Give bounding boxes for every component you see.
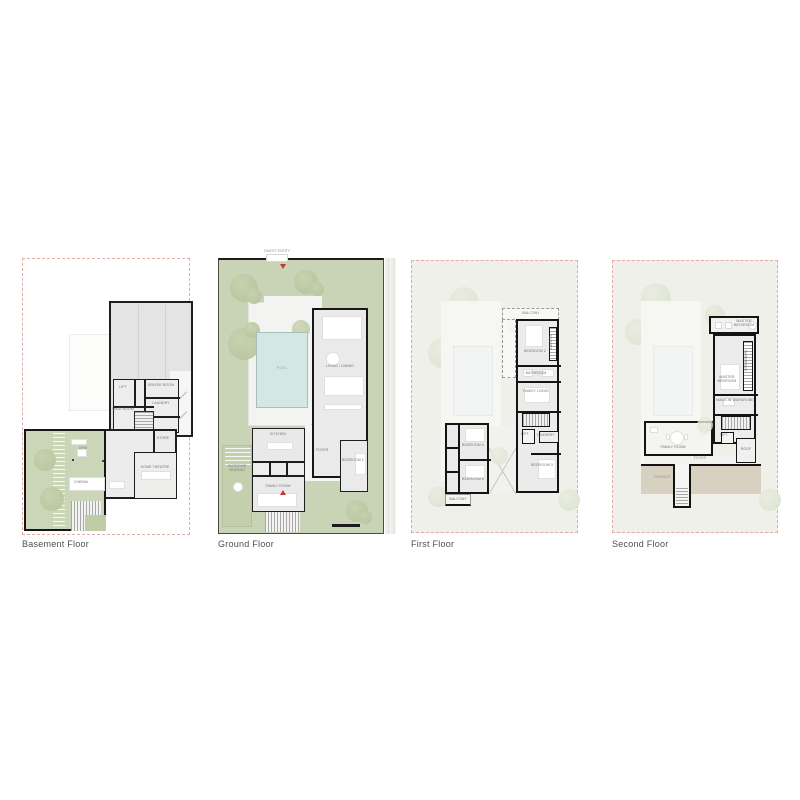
second-floor-panel: MASTER BATHROOM WARDROBE MASTER BEDROOM … — [612, 260, 778, 533]
ground-floor-panel: GUEST ENTRY POOL LIVING / DINING — [218, 258, 396, 535]
room-label-lift: LIFT — [717, 433, 731, 437]
chair — [666, 434, 670, 440]
room-label-balcony-2: BALCONY — [445, 497, 471, 501]
guest-entry-marker — [280, 264, 286, 269]
wall — [518, 381, 561, 383]
road-line — [388, 258, 389, 534]
room-label-lift: LIFT — [115, 385, 131, 389]
bed — [465, 428, 485, 442]
room-label-master-bedroom: MASTER BEDROOM — [713, 375, 741, 384]
outdoor-table — [233, 482, 243, 492]
sofa — [109, 481, 125, 489]
room-label-roof: ROOF — [738, 447, 754, 451]
column — [102, 460, 104, 462]
terrace-stair-chute — [673, 464, 691, 508]
wall — [269, 463, 271, 477]
ground-pantry-strip — [252, 462, 305, 476]
first-stairs — [522, 413, 550, 427]
wall — [144, 397, 180, 399]
room-label-closet: CLOSET — [548, 331, 552, 353]
entry-steps — [265, 510, 300, 532]
bed — [355, 453, 366, 475]
room-label-lift: LIFT — [518, 432, 532, 436]
bed — [525, 325, 543, 347]
basement-floor-panel: LIFT DRIVER ROOM LAUNDRY MAID ROOM STORE… — [22, 258, 190, 535]
room-label-family-room-2: FAMILY ROOM — [655, 445, 691, 449]
sideboard — [650, 427, 658, 433]
room-label-home-theatre: HOME THEATRE — [139, 465, 171, 469]
tree — [246, 288, 262, 304]
second-floor-caption: Second Floor — [612, 539, 669, 549]
sofa-set — [322, 316, 362, 340]
first-left-wing — [445, 423, 489, 494]
parking-bay-line — [165, 305, 166, 389]
floor-plans-sheet: LIFT DRIVER ROOM LAUNDRY MAID ROOM STORE… — [0, 0, 800, 800]
chute-steps — [676, 488, 688, 504]
room-label-driver-room: DRIVER ROOM — [147, 383, 175, 387]
ghost-tree — [697, 417, 713, 433]
outdoor-seating-area — [222, 445, 252, 527]
room-label-store: STORE — [153, 436, 173, 440]
room-label-wardrobe: WARDROBE — [743, 347, 747, 375]
basement-floor-caption: Basement Floor — [22, 539, 89, 549]
room-label-bedroom-4: BEDROOM 4 — [458, 443, 488, 447]
kitchen-island — [267, 442, 293, 450]
room-label-cinema: CINEMA — [69, 480, 93, 484]
second-right-wing — [713, 334, 756, 444]
room-label-terrace: TERRACE — [649, 475, 675, 479]
wall — [447, 471, 458, 473]
console — [324, 404, 362, 410]
tree — [34, 449, 56, 471]
wall — [134, 380, 136, 406]
guest-entry-label: GUEST ENTRY — [258, 249, 296, 253]
dining-table — [324, 376, 364, 396]
room-label-walkin-wardrobe: WALK-IN WARDROBE — [715, 398, 755, 402]
wall — [531, 453, 561, 455]
room-label-laundry: LAUNDRY — [147, 401, 175, 405]
sink-fixture — [715, 322, 722, 329]
room-label-maid-room: MAID ROOM — [111, 407, 135, 411]
ghost-pool — [653, 346, 693, 416]
wall — [153, 431, 155, 452]
courtyard-louvers — [53, 433, 65, 529]
room-label-bedroom-2: BEDROOM 2 — [518, 349, 552, 353]
tree — [310, 282, 324, 296]
room-label-bedroom-1: BEDROOM 1 — [340, 458, 366, 462]
room-label-gym: GYM — [73, 446, 93, 450]
first-floor-panel: BALCONY BEDROOM 2 CLOSET BATHROOM F — [411, 260, 578, 533]
second-stairs — [721, 416, 751, 430]
sectional-sofa — [257, 493, 297, 507]
threshold-bar — [332, 524, 360, 527]
ground-family-room — [252, 476, 305, 512]
room-label-bathroom: BATHROOM — [518, 371, 554, 375]
table — [71, 439, 87, 445]
first-balcony-side — [502, 320, 516, 378]
room-label-foyer: FOYER — [310, 448, 334, 452]
column — [72, 459, 74, 461]
parking-bay-line — [138, 305, 139, 389]
basement-ghost-footprint — [69, 334, 111, 411]
road-line — [393, 258, 394, 534]
room-label-balcony: BALCONY — [516, 311, 546, 315]
ghost-tree — [558, 489, 580, 511]
wall — [447, 447, 458, 449]
main-entry-marker — [280, 490, 286, 495]
ghost-tree — [490, 447, 508, 465]
room-label-foyer-2: FOYER — [689, 456, 711, 460]
room-label-family-room: FAMILY ROOM — [258, 484, 298, 488]
round-table — [670, 431, 684, 445]
room-label-outdoor-seating: OUTDOOR SEATING — [222, 464, 252, 473]
room-label-pool: POOL — [272, 366, 292, 370]
ground-road-strip — [385, 258, 396, 534]
room-label-bedroom-3: BEDROOM 3 — [528, 463, 556, 467]
room-label-living-dining: LIVING / DINING — [322, 364, 358, 368]
wall — [458, 425, 460, 496]
room-label-laundry: LAUNDRY — [536, 433, 556, 437]
wall — [518, 365, 561, 367]
wall — [286, 463, 288, 477]
first-floor-caption: First Floor — [411, 539, 454, 549]
ghost-pool — [453, 346, 493, 416]
guest-entry-gate — [266, 254, 288, 262]
wall — [458, 459, 491, 461]
chair — [684, 434, 688, 440]
room-label-master-bathroom: MASTER BATHROOM — [731, 319, 757, 328]
wall — [715, 394, 758, 396]
ground-floor-caption: Ground Floor — [218, 539, 274, 549]
basement-home-theatre — [134, 452, 177, 499]
room-label-kitchen: KITCHEN — [264, 432, 292, 436]
tree — [358, 510, 372, 524]
courtyard-planting — [85, 515, 106, 531]
ground-bedroom-1 — [340, 440, 368, 492]
room-label-bedroom-5: BEDROOM 5 — [458, 477, 488, 481]
theatre-seats — [141, 471, 171, 480]
first-corridor — [489, 426, 516, 448]
room-label-family-living: FAMILY LIVING — [516, 389, 556, 393]
ghost-tree — [759, 489, 781, 511]
bed — [538, 459, 556, 479]
tree — [40, 487, 64, 511]
